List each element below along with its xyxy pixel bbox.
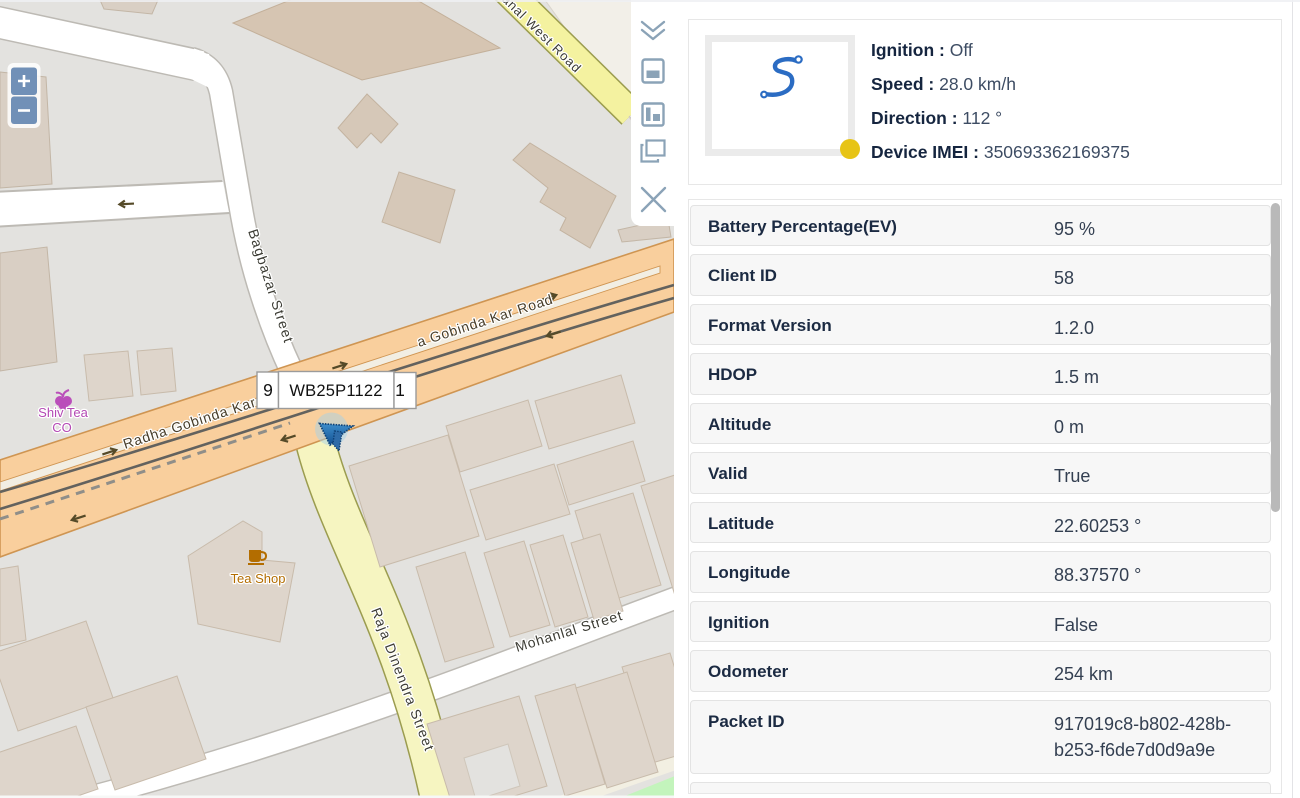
svg-text:9: 9 bbox=[263, 380, 273, 400]
svg-text:Shiv Tea: Shiv Tea bbox=[38, 405, 88, 420]
svg-text:Tea Shop: Tea Shop bbox=[231, 571, 286, 586]
svg-text:1: 1 bbox=[395, 380, 405, 400]
svg-text:CO: CO bbox=[52, 420, 72, 435]
svg-text:WB25P1122: WB25P1122 bbox=[289, 382, 382, 400]
